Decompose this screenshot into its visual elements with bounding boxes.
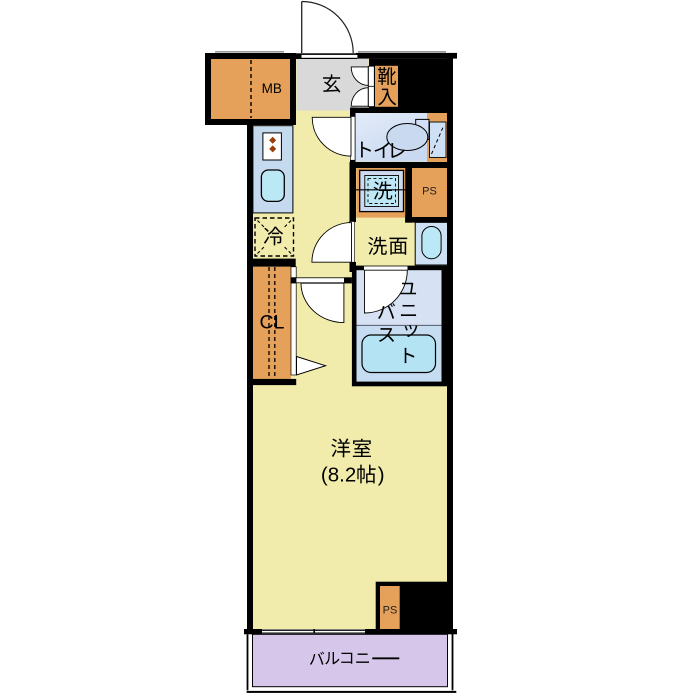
svg-text:MB: MB <box>262 81 282 96</box>
svg-text:PS: PS <box>383 604 398 616</box>
svg-text:CL: CL <box>260 312 285 334</box>
svg-text:): ) <box>378 463 385 486</box>
svg-text:(8.2: (8.2 <box>321 463 356 486</box>
svg-text:PS: PS <box>422 185 437 197</box>
